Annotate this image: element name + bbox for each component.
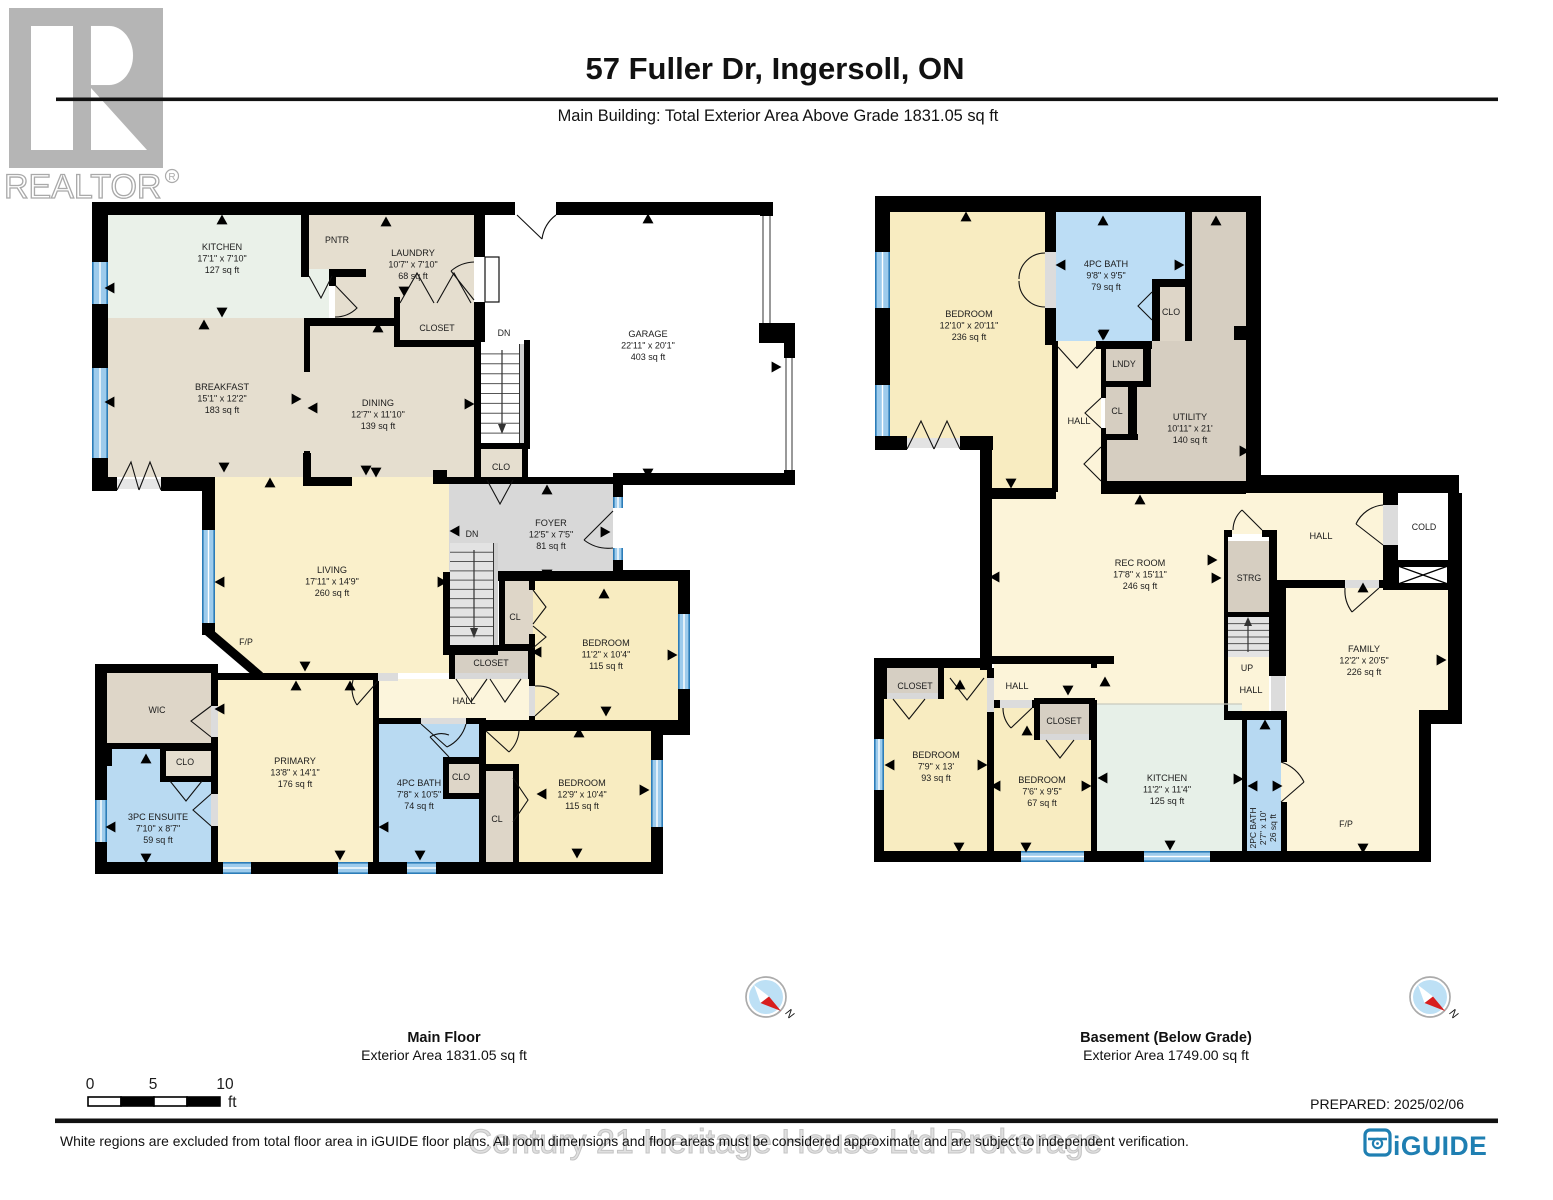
svg-text:CLO: CLO	[492, 462, 510, 472]
svg-text:Exterior Area 1749.00 sq ft: Exterior Area 1749.00 sq ft	[1083, 1047, 1249, 1063]
svg-text:BEDROOM: BEDROOM	[912, 750, 959, 760]
svg-text:KITCHEN: KITCHEN	[1147, 773, 1187, 783]
svg-text:140 sq ft: 140 sq ft	[1173, 435, 1208, 445]
svg-text:F/P: F/P	[1339, 819, 1353, 829]
svg-text:17'1" x 7'10": 17'1" x 7'10"	[197, 254, 246, 264]
svg-text:CLOSET: CLOSET	[1046, 716, 1082, 726]
svg-text:BEDROOM: BEDROOM	[1018, 775, 1065, 785]
svg-text:127 sq ft: 127 sq ft	[205, 265, 240, 275]
svg-text:CLO: CLO	[1162, 307, 1180, 317]
svg-text:4PC BATH: 4PC BATH	[397, 778, 441, 788]
svg-text:74 sq ft: 74 sq ft	[404, 801, 434, 811]
svg-text:68 sq ft: 68 sq ft	[398, 271, 428, 281]
svg-text:FOYER: FOYER	[535, 518, 567, 528]
svg-text:REALTOR: REALTOR	[4, 168, 161, 206]
svg-text:R: R	[168, 172, 175, 183]
svg-text:DINING: DINING	[362, 398, 394, 408]
svg-text:246 sq ft: 246 sq ft	[1123, 581, 1158, 591]
svg-text:2PC BATH: 2PC BATH	[1248, 808, 1258, 849]
svg-text:KITCHEN: KITCHEN	[202, 242, 242, 252]
svg-text:BEDROOM: BEDROOM	[945, 309, 992, 319]
svg-text:226 sq ft: 226 sq ft	[1347, 667, 1382, 677]
svg-text:F/P: F/P	[239, 637, 253, 647]
svg-text:57 Fuller Dr, Ingersoll, ON: 57 Fuller Dr, Ingersoll, ON	[586, 51, 965, 86]
svg-text:10'7" x 7'10": 10'7" x 7'10"	[388, 260, 437, 270]
svg-text:LAUNDRY: LAUNDRY	[391, 248, 435, 258]
svg-text:12'7" x 11'10": 12'7" x 11'10"	[351, 410, 405, 420]
svg-text:9'8" x 9'5": 9'8" x 9'5"	[1086, 271, 1125, 281]
svg-text:LNDY: LNDY	[1112, 359, 1136, 369]
svg-text:GARAGE: GARAGE	[628, 329, 667, 339]
svg-text:UP: UP	[1241, 663, 1253, 673]
svg-text:Exterior Area 1831.05 sq ft: Exterior Area 1831.05 sq ft	[361, 1047, 527, 1063]
svg-text:REC ROOM: REC ROOM	[1115, 558, 1166, 568]
svg-text:iGUIDE: iGUIDE	[1393, 1131, 1487, 1161]
svg-text:3PC ENSUITE: 3PC ENSUITE	[128, 812, 188, 822]
svg-text:PREPARED: 2025/02/06: PREPARED: 2025/02/06	[1310, 1096, 1464, 1112]
svg-text:CLO: CLO	[452, 772, 470, 782]
svg-text:2'7" x 10': 2'7" x 10'	[1258, 811, 1268, 846]
svg-text:White regions are excluded fro: White regions are excluded from total fl…	[60, 1133, 1189, 1149]
svg-text:UTILITY: UTILITY	[1173, 412, 1207, 422]
svg-text:HALL: HALL	[1240, 685, 1263, 695]
svg-text:12'2" x 20'5": 12'2" x 20'5"	[1339, 656, 1388, 666]
svg-text:81 sq ft: 81 sq ft	[536, 541, 566, 551]
svg-text:10: 10	[216, 1076, 234, 1093]
svg-text:22'11" x 20'1": 22'11" x 20'1"	[621, 341, 675, 351]
svg-text:CLOSET: CLOSET	[419, 323, 455, 333]
svg-text:BREAKFAST: BREAKFAST	[195, 382, 250, 392]
svg-text:403 sq ft: 403 sq ft	[631, 352, 666, 362]
svg-text:Main Building: Total Exterior: Main Building: Total Exterior Area Above…	[558, 107, 999, 125]
svg-text:7'6" x 9'5": 7'6" x 9'5"	[1022, 787, 1061, 797]
svg-text:HALL: HALL	[1310, 531, 1333, 541]
svg-text:17'11" x 14'9": 17'11" x 14'9"	[305, 577, 359, 587]
svg-text:260 sq ft: 260 sq ft	[315, 588, 350, 598]
svg-text:PNTR: PNTR	[325, 235, 349, 245]
svg-text:7'8" x 10'5": 7'8" x 10'5"	[397, 790, 441, 800]
svg-text:139 sq ft: 139 sq ft	[361, 421, 396, 431]
svg-text:STRG: STRG	[1237, 573, 1262, 583]
svg-text:7'9" x 13': 7'9" x 13'	[918, 762, 954, 772]
svg-text:HALL: HALL	[1006, 681, 1029, 691]
svg-text:12'5" x 7'5": 12'5" x 7'5"	[529, 530, 573, 540]
svg-text:COLD: COLD	[1412, 522, 1436, 532]
svg-text:115 sq ft: 115 sq ft	[565, 801, 599, 811]
svg-text:Main Floor: Main Floor	[407, 1030, 481, 1046]
svg-text:26 sq ft: 26 sq ft	[1268, 813, 1278, 842]
svg-text:115 sq ft: 115 sq ft	[589, 661, 623, 671]
svg-text:BEDROOM: BEDROOM	[582, 638, 629, 648]
svg-text:CLOSET: CLOSET	[473, 658, 509, 668]
svg-text:15'1" x 12'2": 15'1" x 12'2"	[197, 394, 246, 404]
svg-text:12'9" x 10'4": 12'9" x 10'4"	[557, 790, 606, 800]
svg-text:CLOSET: CLOSET	[897, 681, 933, 691]
svg-text:CL: CL	[491, 814, 502, 824]
svg-text:HALL: HALL	[453, 696, 476, 706]
svg-text:LIVING: LIVING	[317, 565, 347, 575]
svg-text:BEDROOM: BEDROOM	[558, 778, 605, 788]
svg-text:67 sq ft: 67 sq ft	[1027, 798, 1057, 808]
svg-text:7'10" x 8'7": 7'10" x 8'7"	[136, 824, 180, 834]
svg-text:FAMILY: FAMILY	[1348, 644, 1380, 654]
svg-text:10'11" x 21': 10'11" x 21'	[1167, 424, 1213, 434]
svg-text:59 sq ft: 59 sq ft	[143, 835, 173, 845]
svg-text:CL: CL	[509, 612, 520, 622]
svg-text:PRIMARY: PRIMARY	[274, 756, 316, 766]
svg-text:93 sq ft: 93 sq ft	[921, 773, 951, 783]
svg-text:236 sq ft: 236 sq ft	[952, 332, 987, 342]
svg-text:0: 0	[86, 1076, 95, 1093]
svg-text:4PC BATH: 4PC BATH	[1084, 259, 1128, 269]
svg-text:183 sq ft: 183 sq ft	[205, 405, 240, 415]
svg-text:176 sq ft: 176 sq ft	[278, 779, 313, 789]
svg-text:Basement (Below Grade): Basement (Below Grade)	[1080, 1030, 1252, 1046]
svg-text:11'2" x 11'4": 11'2" x 11'4"	[1143, 785, 1191, 795]
svg-text:5: 5	[149, 1076, 158, 1093]
svg-text:CL: CL	[1111, 406, 1122, 416]
svg-text:13'8" x 14'1": 13'8" x 14'1"	[270, 768, 319, 778]
svg-text:12'10" x 20'11": 12'10" x 20'11"	[940, 321, 999, 331]
svg-text:79 sq ft: 79 sq ft	[1091, 282, 1121, 292]
svg-text:WIC: WIC	[148, 705, 166, 715]
svg-text:DN: DN	[466, 529, 479, 539]
svg-text:HALL: HALL	[1068, 416, 1091, 426]
svg-text:ft: ft	[228, 1094, 237, 1111]
svg-text:CLO: CLO	[176, 757, 194, 767]
svg-text:125 sq ft: 125 sq ft	[1150, 796, 1185, 806]
svg-text:17'8" x 15'11": 17'8" x 15'11"	[1113, 570, 1167, 580]
svg-text:DN: DN	[498, 328, 511, 338]
svg-text:11'2" x 10'4": 11'2" x 10'4"	[582, 650, 631, 660]
